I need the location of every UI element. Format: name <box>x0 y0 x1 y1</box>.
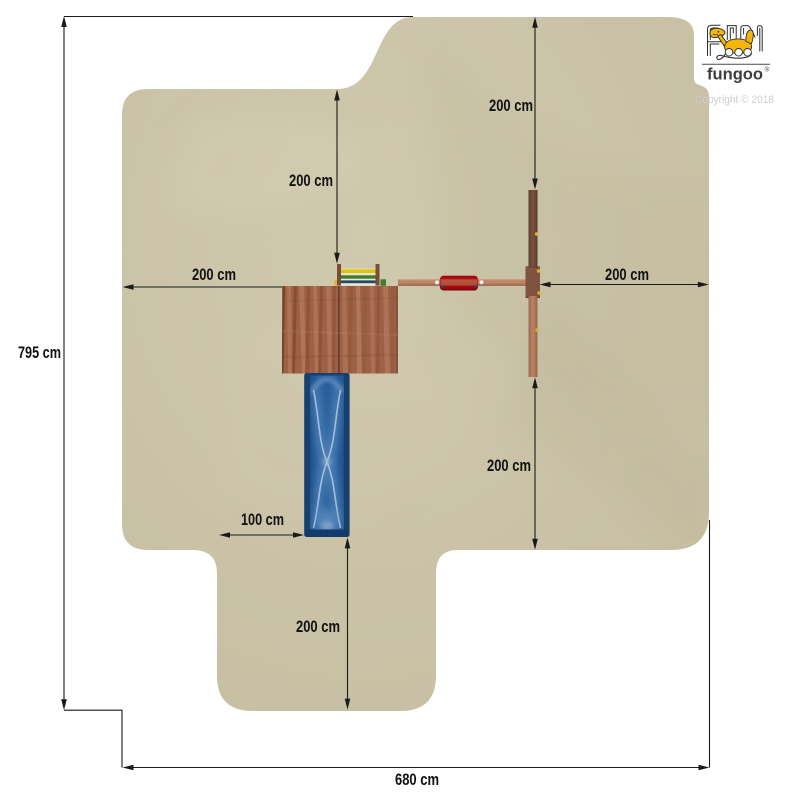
svg-text:200 cm: 200 cm <box>192 265 236 284</box>
svg-text:200 cm: 200 cm <box>489 96 533 115</box>
svg-text:200 cm: 200 cm <box>296 617 340 636</box>
svg-text:200 cm: 200 cm <box>487 456 531 475</box>
svg-text:®: ® <box>765 66 770 74</box>
svg-text:100 cm: 100 cm <box>241 510 284 529</box>
svg-text:795 cm: 795 cm <box>18 343 61 362</box>
svg-text:680 cm: 680 cm <box>395 770 439 789</box>
svg-text:200 cm: 200 cm <box>289 171 333 190</box>
svg-text:Copyright © 2018: Copyright © 2018 <box>695 94 774 106</box>
svg-text:fungoo: fungoo <box>707 66 763 84</box>
svg-text:200 cm: 200 cm <box>605 265 649 284</box>
